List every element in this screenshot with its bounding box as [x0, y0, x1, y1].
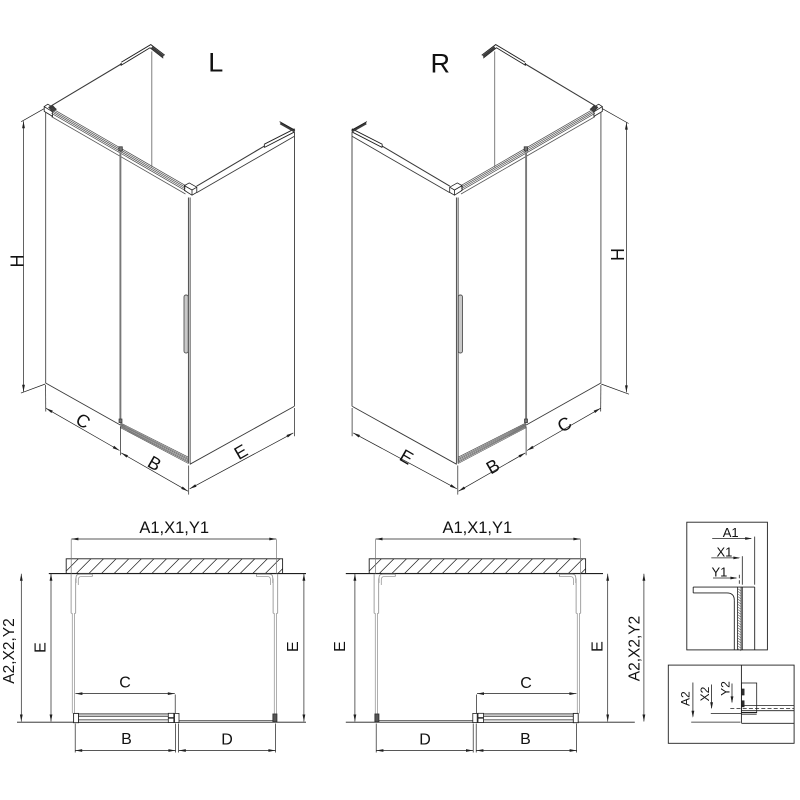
svg-text:Y2: Y2	[719, 681, 733, 696]
svg-text:A2,X2,Y2: A2,X2,Y2	[626, 616, 643, 682]
svg-text:A2,X2,Y2: A2,X2,Y2	[1, 618, 18, 684]
svg-text:D: D	[221, 731, 233, 748]
svg-text:B: B	[520, 731, 531, 748]
svg-text:E: E	[589, 641, 606, 652]
svg-text:C: C	[520, 675, 532, 692]
svg-text:B: B	[121, 731, 132, 748]
svg-text:D: D	[419, 731, 431, 748]
svg-text:H: H	[8, 255, 28, 268]
svg-text:C: C	[119, 675, 131, 692]
svg-text:A2: A2	[679, 691, 693, 706]
svg-text:X2: X2	[698, 686, 712, 701]
svg-text:E: E	[332, 641, 349, 652]
svg-text:H: H	[608, 248, 628, 261]
svg-text:A1,X1,Y1: A1,X1,Y1	[442, 519, 512, 537]
svg-text:X1: X1	[716, 544, 732, 559]
svg-text:Y1: Y1	[711, 564, 727, 579]
svg-text:A1,X1,Y1: A1,X1,Y1	[139, 519, 209, 537]
svg-text:A1: A1	[723, 525, 739, 540]
svg-text:R: R	[430, 49, 450, 79]
svg-text:L: L	[208, 48, 223, 78]
svg-text:E: E	[285, 641, 302, 652]
svg-text:E: E	[33, 642, 50, 653]
